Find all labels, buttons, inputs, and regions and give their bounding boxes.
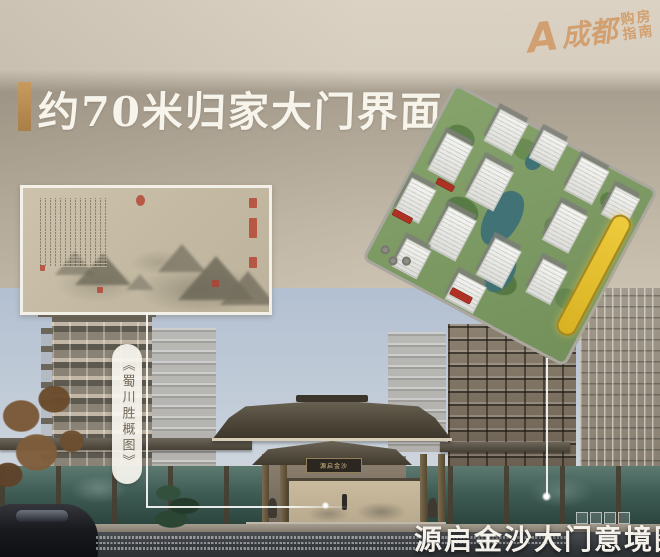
painting-title-text: 《蜀川胜概图》 [118,358,137,470]
logo-a-mark: A [525,16,559,59]
classical-painting [20,185,272,315]
leader-glow-dot [542,492,551,501]
pedestrian-silhouette [342,494,347,510]
gate-column [438,454,445,526]
painting-seal [40,265,45,271]
painting-seal [97,287,103,293]
slide-canvas: A 成都 购房 指南 约70米归家大门界面 [0,0,660,557]
painting-title-pill: 《蜀川胜概图》 [112,344,142,484]
gate-mural-scroll [286,478,424,528]
autumn-tree [0,374,96,514]
title-accent-bar [18,82,31,131]
stone-lion [428,498,437,518]
painting-mountain [126,274,154,290]
gate-column [420,454,427,526]
photo-caption: 源启金沙大门意境图 [414,518,660,557]
callout-glow-dot [322,502,329,509]
painting-seal [212,280,219,287]
background-tower [150,328,216,488]
logo-tagline-line2: 指南 [622,24,656,43]
gate-roof-fascia [212,438,452,441]
logo-tagline: 购房 指南 [620,9,656,43]
painting-seal [249,257,257,268]
gate-roof-ridge [296,395,368,402]
leader-line-from-highlight [546,358,548,498]
page-title: 约70米归家大门界面 [37,78,444,138]
car-silhouette [0,504,98,557]
callout-line-vertical-left [146,313,148,507]
painting-seal [249,218,257,238]
disclaimer-line [96,547,416,550]
painting-seal [249,198,257,208]
stone-lion [268,498,277,518]
painting-mountain [220,271,272,305]
gate-plaque: 源启金沙 [306,458,362,473]
brand-logo: A 成都 购房 指南 [525,4,656,59]
right-wing-canopy [440,442,570,452]
logo-brand-text: 成都 [559,9,619,56]
gate-plaque-text: 源启金沙 [320,461,348,470]
painting-calligraphy-columns [40,198,106,267]
